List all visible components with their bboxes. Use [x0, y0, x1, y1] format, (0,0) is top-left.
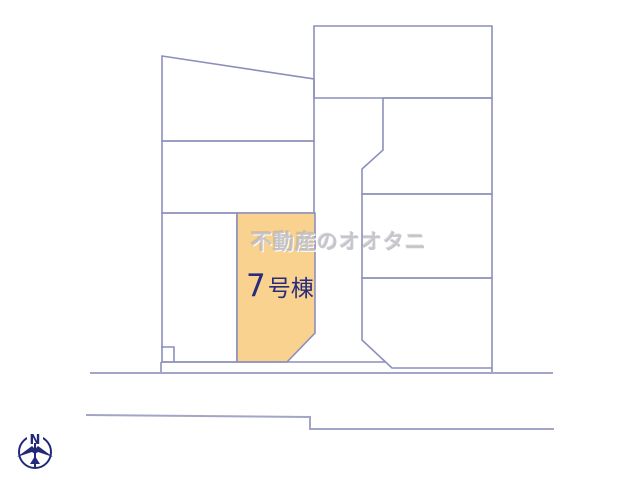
corner-notch — [161, 347, 174, 362]
compass-tail — [30, 456, 40, 464]
parcel-top-left — [162, 56, 314, 141]
parcel-7-label: 7 号棟 — [246, 271, 314, 302]
parcel-bottom-left — [162, 213, 237, 362]
watermark-text: 不動産のオオタニ — [251, 226, 427, 256]
parcel-mid-left — [162, 141, 314, 213]
parcel-7-label-number: 7 — [246, 271, 266, 302]
plot-map-screen: N 不動産のオオタニ 7 号棟 — [0, 0, 640, 480]
parcel-right-4 — [362, 278, 492, 368]
parcel-right-2 — [362, 98, 492, 194]
parcel-7-label-suffix: 号棟 — [268, 278, 314, 301]
parcel-top-right — [314, 26, 492, 98]
far-road-stepped-line — [86, 415, 554, 429]
compass: N — [17, 432, 53, 468]
